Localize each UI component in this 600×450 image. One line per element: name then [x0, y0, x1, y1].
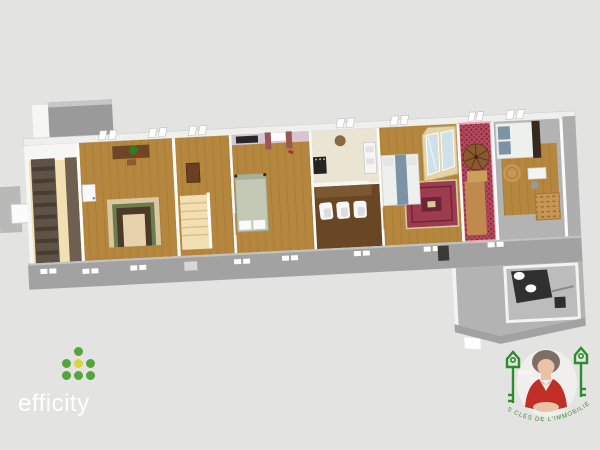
- stool: [554, 297, 566, 309]
- room-stair-hall: [175, 135, 235, 256]
- curtain-right: [286, 131, 293, 148]
- annex-skylight: [464, 337, 481, 349]
- dining-chairs: [319, 200, 367, 220]
- mirrored-wardrobe: [422, 126, 459, 182]
- double-bed: [381, 154, 420, 206]
- efficity-logo-text: efficity: [18, 390, 138, 418]
- window: [271, 133, 286, 142]
- agent-badge: efficity LES CLÉS DE L'IMMOBILIER: [487, 335, 600, 445]
- facade-door: [438, 245, 450, 261]
- curtain-left: [265, 132, 272, 149]
- efficity-logo: efficity: [18, 344, 138, 418]
- room-spiral-stair: [458, 122, 496, 241]
- room-bathroom: [505, 264, 580, 322]
- left-bay-window: [11, 204, 29, 224]
- tall-cabinet: [186, 163, 200, 183]
- room-bedroom-rug: [379, 124, 463, 246]
- layered-rug: [107, 197, 161, 248]
- wall-tv: [236, 135, 258, 143]
- room-entry-staircase: [28, 143, 82, 263]
- room-bedroom-pink: [231, 130, 315, 253]
- key-icon-left: [507, 352, 519, 403]
- double-bed: [234, 173, 269, 232]
- beige-staircase: [180, 192, 213, 249]
- room-office: [79, 138, 178, 261]
- efficity-logo-dots-icon: [40, 344, 130, 384]
- key-icon-right: [575, 348, 587, 397]
- double-bed: [495, 121, 541, 160]
- room-kitchen-dining: [311, 128, 383, 249]
- white-desk: [528, 167, 547, 179]
- room-bedroom-right: [493, 119, 565, 240]
- wicker-chest: [535, 193, 560, 220]
- floorplan-viewer: efficity effic: [0, 0, 600, 450]
- badge-watermark: efficity: [518, 370, 533, 376]
